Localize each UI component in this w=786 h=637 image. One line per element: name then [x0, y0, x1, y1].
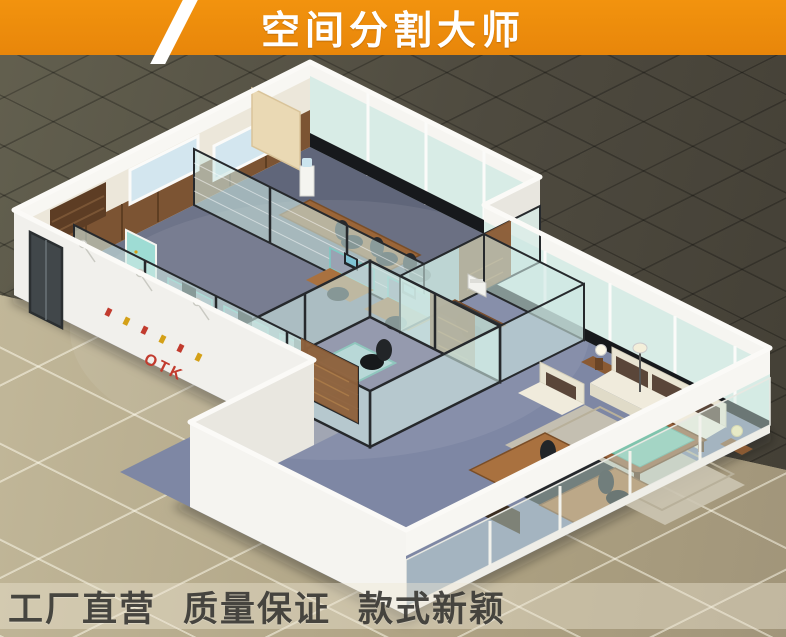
- title-banner: 空间分割大师: [0, 0, 786, 55]
- slogan-factory-direct: 工厂直营: [8, 581, 156, 632]
- banner-slash-decoration: [150, 0, 201, 64]
- product-image: OTK 空间分割大师 工厂直营 质量保证 款式新颖: [0, 0, 786, 637]
- slogan-list: 工厂直营 质量保证 款式新颖: [0, 581, 506, 632]
- office-render: OTK: [0, 0, 786, 637]
- slogan-band: 工厂直营 质量保证 款式新颖: [0, 583, 786, 629]
- slogan-quality: 质量保证: [183, 581, 331, 632]
- banner-title: 空间分割大师: [261, 0, 525, 56]
- slogan-styles: 款式新颖: [358, 581, 506, 632]
